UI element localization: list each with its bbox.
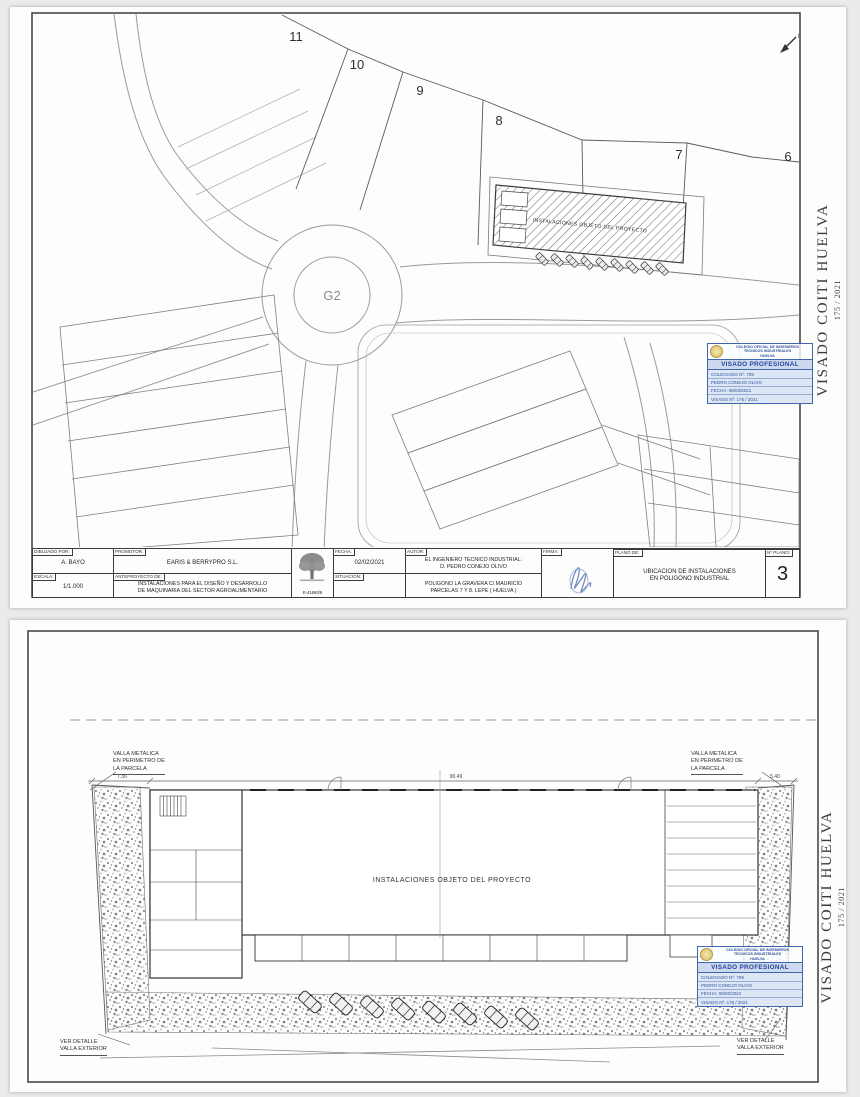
drawing-frame	[32, 13, 800, 597]
parcel-number-11: 11	[289, 29, 303, 44]
stamp-title: VISADO PROFESIONAL	[708, 359, 812, 370]
cell-fecha: FECHA: 02/02/2021	[333, 549, 405, 573]
parcel-number-6: 6	[784, 149, 791, 164]
cell-autor: AUTOR: EL INGENIERO TECNICO INDUSTRIAL: …	[405, 549, 541, 573]
cell-situacion-label: SITUACION:	[333, 573, 405, 597]
stamp-colegiado: COLEGIADO Nº: 709	[698, 973, 802, 981]
site-plan-drawing: G2 11 10 9 8 7	[10, 7, 846, 608]
parcel-number-9: 9	[416, 83, 423, 98]
stamp-colegiado: COLEGIADO Nº: 709	[708, 370, 812, 378]
dim-right: 5.40	[770, 774, 780, 780]
gravel-band-bottom	[106, 992, 788, 1036]
stamp-fecha: FECHA: 08/03/2021	[698, 990, 802, 998]
signature-icon	[543, 555, 613, 595]
sheet-ubicacion: G2 11 10 9 8 7	[10, 7, 846, 608]
situacion-value: POLIGONO LA GRAVERA C/ MAURICIO PARCELAS…	[406, 574, 541, 597]
college-crest-icon	[710, 345, 723, 358]
dibujado-label: DIBUJADO POR:	[33, 549, 73, 556]
parcel-number-7: 7	[675, 147, 682, 162]
plano-de-label: PLANO DE:	[614, 550, 643, 557]
stamp-visado-num: VISADO Nº: 175 / 2021	[698, 998, 802, 1005]
cell-promotor: PROMOTOR: EARIS & BERRYPRO S.L.	[113, 549, 291, 573]
building-label: INSTALACIONES OBJETO DEL PROYECTO	[373, 877, 531, 884]
fence-detail-note-left: VER DETALLE VALLA EXTERIOR	[60, 1039, 107, 1056]
stamp-engineer: PEDRO CONEJO OLIVO	[708, 379, 812, 387]
plot-plan-drawing: 7.36 90.49 5.40	[10, 620, 846, 1092]
stamp-title: VISADO PROFESIONAL	[698, 962, 802, 973]
cell-situacion-value: POLIGONO LA GRAVERA C/ MAURICIO PARCELAS…	[405, 573, 541, 597]
stamp-header: COLEGIO OFICIAL DE INGENIEROS TECNICOS I…	[708, 344, 812, 359]
cell-logo: E-41660/6	[291, 549, 333, 597]
stamp-org-name: COLEGIO OFICIAL DE INGENIEROS TECNICOS I…	[725, 345, 810, 358]
sheet-parcela: 7.36 90.49 5.40	[10, 620, 846, 1092]
fence-label-left: VALLA METALICA EN PERIMETRO DE LA PARCEL…	[113, 751, 165, 775]
stamp-org-line3: HUELVA	[715, 957, 800, 961]
promotor-label: PROMOTOR:	[114, 549, 146, 556]
cell-num-plano: Nº PLANO: 3	[765, 549, 799, 597]
fence-detail-note-right: VER DETALLE VALLA EXTERIOR	[737, 1038, 784, 1055]
num-plano-label: Nº PLANO:	[766, 550, 793, 557]
loading-strip	[255, 935, 627, 961]
stamp-org-name: COLEGIO OFICIAL DE INGENIEROS TECNICOS I…	[715, 948, 800, 961]
cell-escala: ESCALA: 1/1.000	[33, 573, 113, 597]
stamp-org-line3: HUELVA	[725, 354, 810, 358]
stamp-visado-num: VISADO Nº: 175 / 2021	[708, 395, 812, 402]
situacion-label: SITUACION:	[334, 574, 364, 581]
building-annex-rooms	[499, 191, 528, 243]
anteproyecto-label: ANTEPROYECTO DE:	[114, 574, 165, 581]
scanned-plan-page: { "colors": {"background": "#ebebe9", "p…	[0, 0, 860, 1097]
fecha-label: FECHA:	[334, 549, 355, 556]
cell-dibujado: DIBUJADO POR: A. BAYO	[33, 549, 113, 573]
title-block: DIBUJADO POR: A. BAYO PROMOTOR: EARIS & …	[32, 548, 800, 598]
logo-code: E-41660/6	[292, 549, 333, 597]
parcel-number-8: 8	[495, 113, 502, 128]
dim-left: 7.36	[117, 774, 127, 780]
cell-firma: FIRMA:	[541, 549, 613, 597]
parcel-number-10: 10	[350, 57, 364, 72]
stamp-fecha: FECHA: 08/03/2021	[708, 387, 812, 395]
roundabout-label: G2	[323, 288, 340, 303]
stamp-header: COLEGIO OFICIAL DE INGENIEROS TECNICOS I…	[698, 947, 802, 962]
visado-stamp: COLEGIO OFICIAL DE INGENIEROS TECNICOS I…	[707, 343, 813, 404]
dim-width: 90.49	[450, 774, 463, 780]
firma-label: FIRMA:	[542, 549, 562, 556]
college-crest-icon	[700, 948, 713, 961]
escala-label: ESCALA:	[33, 574, 56, 581]
cell-plano-de: PLANO DE: UBICACION DE INSTALACIONES EN …	[613, 549, 765, 597]
cell-anteproyecto: ANTEPROYECTO DE: INSTALACIONES PARA EL D…	[113, 573, 291, 597]
stamp-engineer: PEDRO CONEJO OLIVO	[698, 982, 802, 990]
visado-stamp: COLEGIO OFICIAL DE INGENIEROS TECNICOS I…	[697, 946, 803, 1007]
fence-label-right: VALLA METALICA EN PERIMETRO DE LA PARCEL…	[691, 751, 743, 775]
autor-label: AUTOR:	[406, 549, 427, 556]
